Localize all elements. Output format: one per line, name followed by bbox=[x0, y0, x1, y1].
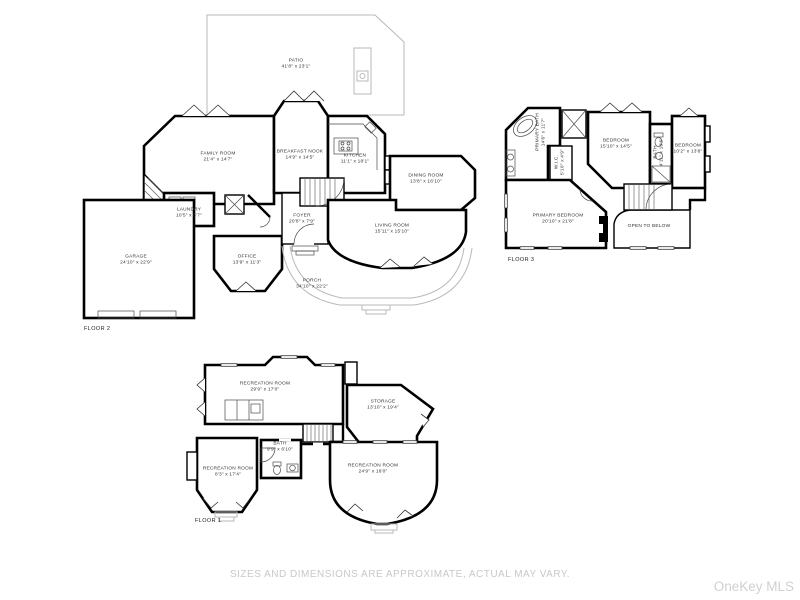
floor1-label: FLOOR 1 bbox=[195, 518, 221, 524]
bay-window-icon bbox=[197, 378, 205, 392]
room-label-rec-room-left: RECREATION ROOM8'3" x 17'4" bbox=[203, 467, 253, 480]
bay-window-icon bbox=[284, 91, 304, 101]
watermark: OneKey MLS bbox=[714, 579, 794, 594]
room-label-bath: BATH4'11" x 10'6" bbox=[654, 138, 667, 167]
floor3-plan: PRIMARY BATH14'6" x 11'7" W.I.C.5'10" x … bbox=[500, 100, 715, 275]
room-label-wic: W.I.C.5'10" x 4'9" bbox=[555, 149, 568, 175]
room-label-family-room: FAMILY ROOM21'4" x 14'7" bbox=[200, 152, 235, 165]
floor1-drawing bbox=[185, 352, 450, 534]
bay-window-icon bbox=[680, 108, 698, 116]
steps-icon bbox=[371, 524, 397, 533]
floor1-plan: RECREATION ROOM29'9" x 17'0" STORAGE13'1… bbox=[185, 352, 450, 534]
closet-icon bbox=[562, 110, 586, 138]
room-label-bedroom-center: BEDROOM15'10" x 14'5" bbox=[600, 139, 632, 152]
floorplan-sheet: PATIO41'8" x 23'1" FAMILY ROOM21'4" x 14… bbox=[0, 0, 800, 600]
room-label-rec-room-top: RECREATION ROOM29'9" x 17'0" bbox=[240, 382, 290, 395]
floor2-plan: PATIO41'8" x 23'1" FAMILY ROOM21'4" x 14… bbox=[78, 8, 488, 340]
floor3-drawing bbox=[500, 100, 715, 275]
floor3-label: FLOOR 3 bbox=[508, 257, 534, 263]
room-label-bedroom-right: BEDROOM10'2" x 13'8" bbox=[674, 144, 703, 157]
stairs-icon bbox=[303, 424, 333, 442]
fireplace-icon bbox=[599, 216, 608, 242]
room-label-dining-room: DINING ROOM13'8" x 16'10" bbox=[408, 174, 443, 187]
room-label-laundry: LAUNDRY10'5" x 6'7" bbox=[176, 208, 202, 221]
disclaimer-text: SIZES AND DIMENSIONS ARE APPROXIMATE, AC… bbox=[0, 569, 800, 580]
room-label-patio: PATIO41'8" x 23'1" bbox=[282, 59, 311, 72]
bay-window-icon bbox=[197, 402, 205, 416]
room-label-breakfast-nook: BREAKFAST NOOK14'9" x 14'5" bbox=[277, 150, 323, 163]
floor2-label: FLOOR 2 bbox=[84, 326, 110, 332]
room-label-porch: PORCH34'10" x 22'2" bbox=[296, 279, 328, 292]
room-label-living-room: LIVING ROOM15'11" x 15'10" bbox=[375, 224, 409, 237]
stairs-icon bbox=[624, 184, 672, 210]
bay-window-icon bbox=[206, 105, 230, 116]
closet-icon bbox=[225, 195, 244, 214]
room-label-garage: GARAGE24'10" x 22'9" bbox=[120, 255, 152, 268]
room-label-rec-room-right: RECREATION ROOM24'9" x 16'0" bbox=[348, 464, 398, 477]
room-label-foyer: FOYER20'8" x 7'9" bbox=[289, 214, 315, 227]
bay-window-icon bbox=[182, 105, 206, 116]
room-label-kitchen: KITCHEN11'1" x 18'1" bbox=[341, 154, 370, 167]
room-label-bath: BATH9'9" x 6'10" bbox=[267, 442, 293, 455]
room-label-primary-bedroom: PRIMARY BEDROOM20'10" x 21'8" bbox=[533, 214, 584, 227]
bay-window-icon bbox=[304, 91, 324, 101]
bay-window-icon bbox=[600, 103, 620, 112]
room-label-office: OFFICE13'9" x 11'3" bbox=[233, 255, 262, 268]
bay-window-icon bbox=[622, 103, 642, 112]
room-label-open-to-below: OPEN TO BELOW bbox=[628, 224, 671, 230]
room-label-primary-bath: PRIMARY BATH14'6" x 11'7" bbox=[536, 113, 549, 151]
room-label-storage: STORAGE13'10" x 19'4" bbox=[367, 400, 399, 413]
